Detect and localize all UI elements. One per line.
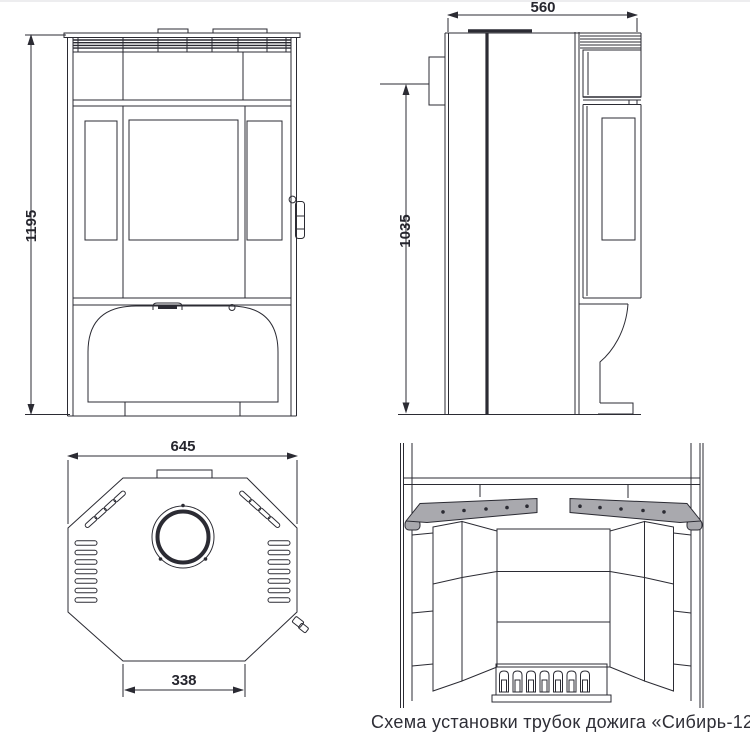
- side-vent-slots-right: [268, 541, 290, 603]
- side-view: 560 1035: [380, 0, 641, 415]
- dim-base-width: 338: [171, 672, 196, 689]
- firebox-afterburner-view: [401, 443, 704, 708]
- door-glass-window: [129, 120, 238, 240]
- side-grille: [580, 33, 641, 50]
- stove-technical-drawing: 1195: [0, 0, 750, 750]
- firebrick-back: [497, 529, 610, 667]
- firebox-walls: [401, 443, 704, 708]
- side-depth-dimension: 560: [447, 0, 638, 32]
- front-upper-panels: [73, 52, 291, 106]
- side-top-panel: [583, 50, 641, 105]
- chamfer-vent-slots-right: [239, 490, 281, 528]
- left-side-window: [85, 121, 117, 240]
- top-plate: [64, 33, 300, 38]
- flue-collar: [152, 504, 214, 568]
- ash-door-latch: [158, 306, 177, 310]
- dim-outlet-height: 1035: [397, 214, 414, 247]
- grate: [492, 664, 611, 702]
- dim-side-depth: 560: [530, 0, 555, 16]
- front-view: 1195: [23, 29, 305, 416]
- front-grille: [73, 38, 291, 53]
- drawing-caption: Схема установки трубок дожига «Сибирь-12…: [371, 712, 750, 733]
- chamfer-vent-slots-left: [84, 490, 126, 528]
- top-tab-left: [158, 29, 188, 33]
- front-main-panels: [73, 106, 291, 305]
- ash-door: [88, 303, 278, 416]
- front-body-outline: [68, 38, 297, 417]
- side-main-panel: [583, 105, 641, 299]
- outlet-height-dimension: 1035: [380, 84, 429, 414]
- side-vent-slots-left: [75, 541, 97, 603]
- top-view-latch: [292, 616, 309, 633]
- side-window: [602, 118, 635, 240]
- side-body: [429, 31, 580, 414]
- top-view: 645: [67, 438, 309, 697]
- firebrick-left: [412, 522, 497, 692]
- afterburner-tube-left: [405, 499, 537, 531]
- front-height-dimension: 1195: [23, 34, 70, 415]
- rear-flue-outlet: [429, 57, 445, 105]
- afterburner-tube-right: [570, 499, 702, 531]
- dim-front-height: 1195: [23, 210, 40, 243]
- flue-collar-tab: [157, 470, 212, 478]
- base-width-dimension: 338: [123, 664, 245, 697]
- firebrick-right: [610, 522, 691, 692]
- side-pedestal: [398, 304, 641, 415]
- technical-drawing-canvas: 1195: [0, 0, 750, 750]
- right-side-window: [247, 121, 282, 240]
- dim-top-width: 645: [170, 438, 195, 455]
- top-tab-right: [213, 29, 267, 33]
